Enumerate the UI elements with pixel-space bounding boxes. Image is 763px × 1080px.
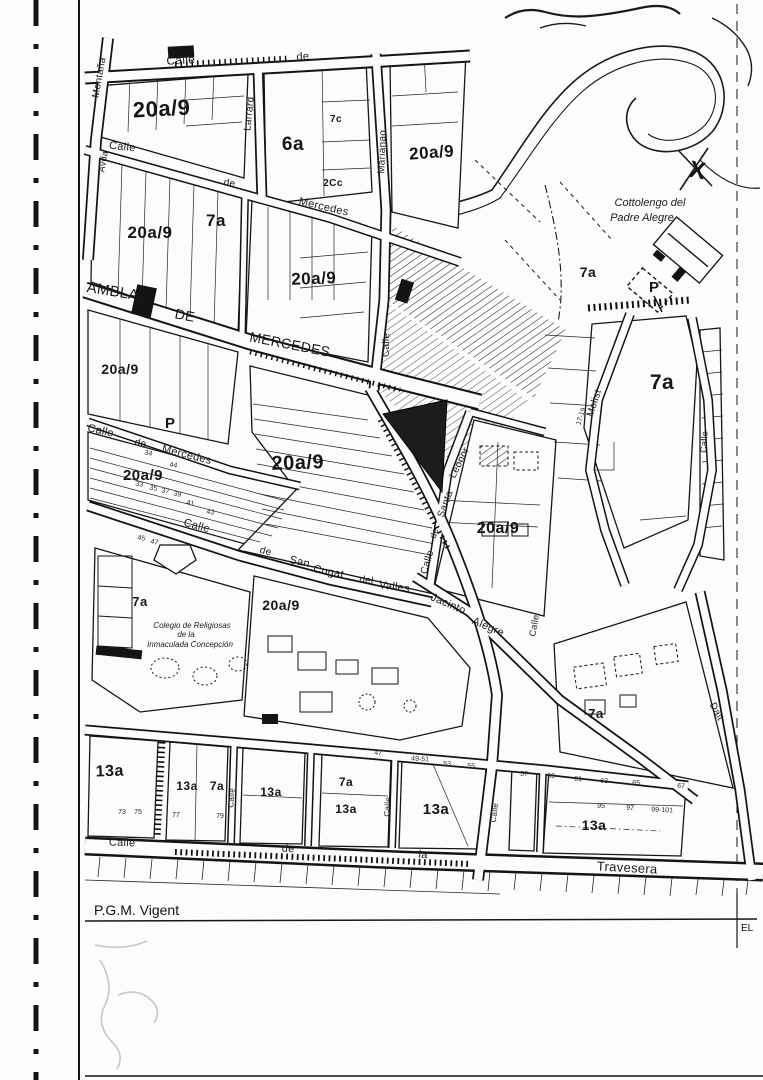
plot-number: 67 [677,783,685,790]
zone-label: 20a/9 [262,597,300,613]
zone-label: 20a/9 [291,268,337,289]
plot-number: 61 [574,776,582,783]
zone-label: 20a/9 [101,361,139,377]
cottolengo-buildings [627,217,723,312]
plot-number: 47 [150,538,159,546]
plot-number: 73 [118,809,126,816]
zone-label: 7a [206,211,226,230]
zone-label: 7a [132,594,148,609]
plot-number: 55 [467,763,475,770]
street-label: Calle [381,332,393,357]
street-label: Calle [226,787,236,808]
zone-label: 13a [95,763,124,781]
plot-number: 95 [597,803,605,810]
street-label: Calle [527,614,541,637]
cottolengo-label-line2: Padre Alegre [610,212,674,224]
zone-label: 2Cc [323,178,343,189]
zone-label: 7a [210,779,224,793]
map-svg: 20a/96a7c2Cc20a/97a20a/920a/97a7a20a/920… [0,0,763,1080]
plot-number: 75 [134,809,142,816]
corner-label: EL [741,923,754,934]
colegio-label-line3: Inmaculada Concepción [147,640,233,649]
map-marker: P [165,415,175,432]
colegio-label-line2: de la [177,630,195,639]
street-label: del [358,574,374,587]
street-label: Travesera [597,858,659,876]
street-label: Calle [166,52,196,67]
cottolengo-label-line1: Cottolengo del [615,197,686,209]
zone-label: 6a [282,134,304,155]
plot-number: 49-51 [411,756,429,764]
zone-label: 13a [260,785,282,799]
zone-label: 7a [588,706,604,721]
footer: P.G.M. Vigent EL [94,902,754,934]
plot-number: 59 [547,773,555,780]
zone-label: 20a/9 [132,95,191,123]
street-label: de [223,177,237,190]
plot-number: 57 [520,771,528,778]
plot-number: 45 [137,534,146,542]
street-label: de [281,843,294,856]
zone-label: 13a [582,817,607,833]
zone-label: 20a/9 [127,223,172,242]
map-marker: X [687,156,707,185]
street-label: Marianao [376,130,389,175]
zone-label: 20a/9 [271,451,324,475]
street-label: Calle [109,837,136,850]
plot-number: 63 [600,778,608,785]
street-label: de [296,51,309,64]
plot-number: 77 [172,812,180,819]
street-label: la [418,849,428,861]
plot-number: 99-101 [651,806,673,814]
map-title: P.G.M. Vigent [94,902,179,918]
plot-number: 97 [626,805,634,812]
plot-number: 47 [374,750,382,757]
plot-number: 79 [216,813,224,820]
zone-label: 7c [330,114,342,125]
street-label: Calle [382,796,392,817]
zone-label: 13a [335,802,357,816]
street-label: Calle [489,802,501,823]
zone-label: 7a [339,775,353,789]
zone-label: 7a [580,264,597,280]
plot-number: 65 [632,780,640,787]
zone-label: 20a/9 [477,520,520,537]
pencil-scribbles [95,941,158,1069]
zone-label: 7a [650,371,674,394]
street-label: Calle [698,430,710,453]
map-marker: P [649,279,659,296]
street-label: Calle [108,140,136,155]
zone-label: 13a [176,779,198,793]
zone-label: 13a [423,801,450,818]
colegio-label-line1: Colegio de Religiosas [153,621,230,630]
scanned-planning-map-page: 20a/96a7c2Cc20a/97a20a/920a/97a7a20a/920… [0,0,763,1080]
plot-number: 53 [443,761,451,768]
zone-label: 20a/9 [408,141,454,163]
